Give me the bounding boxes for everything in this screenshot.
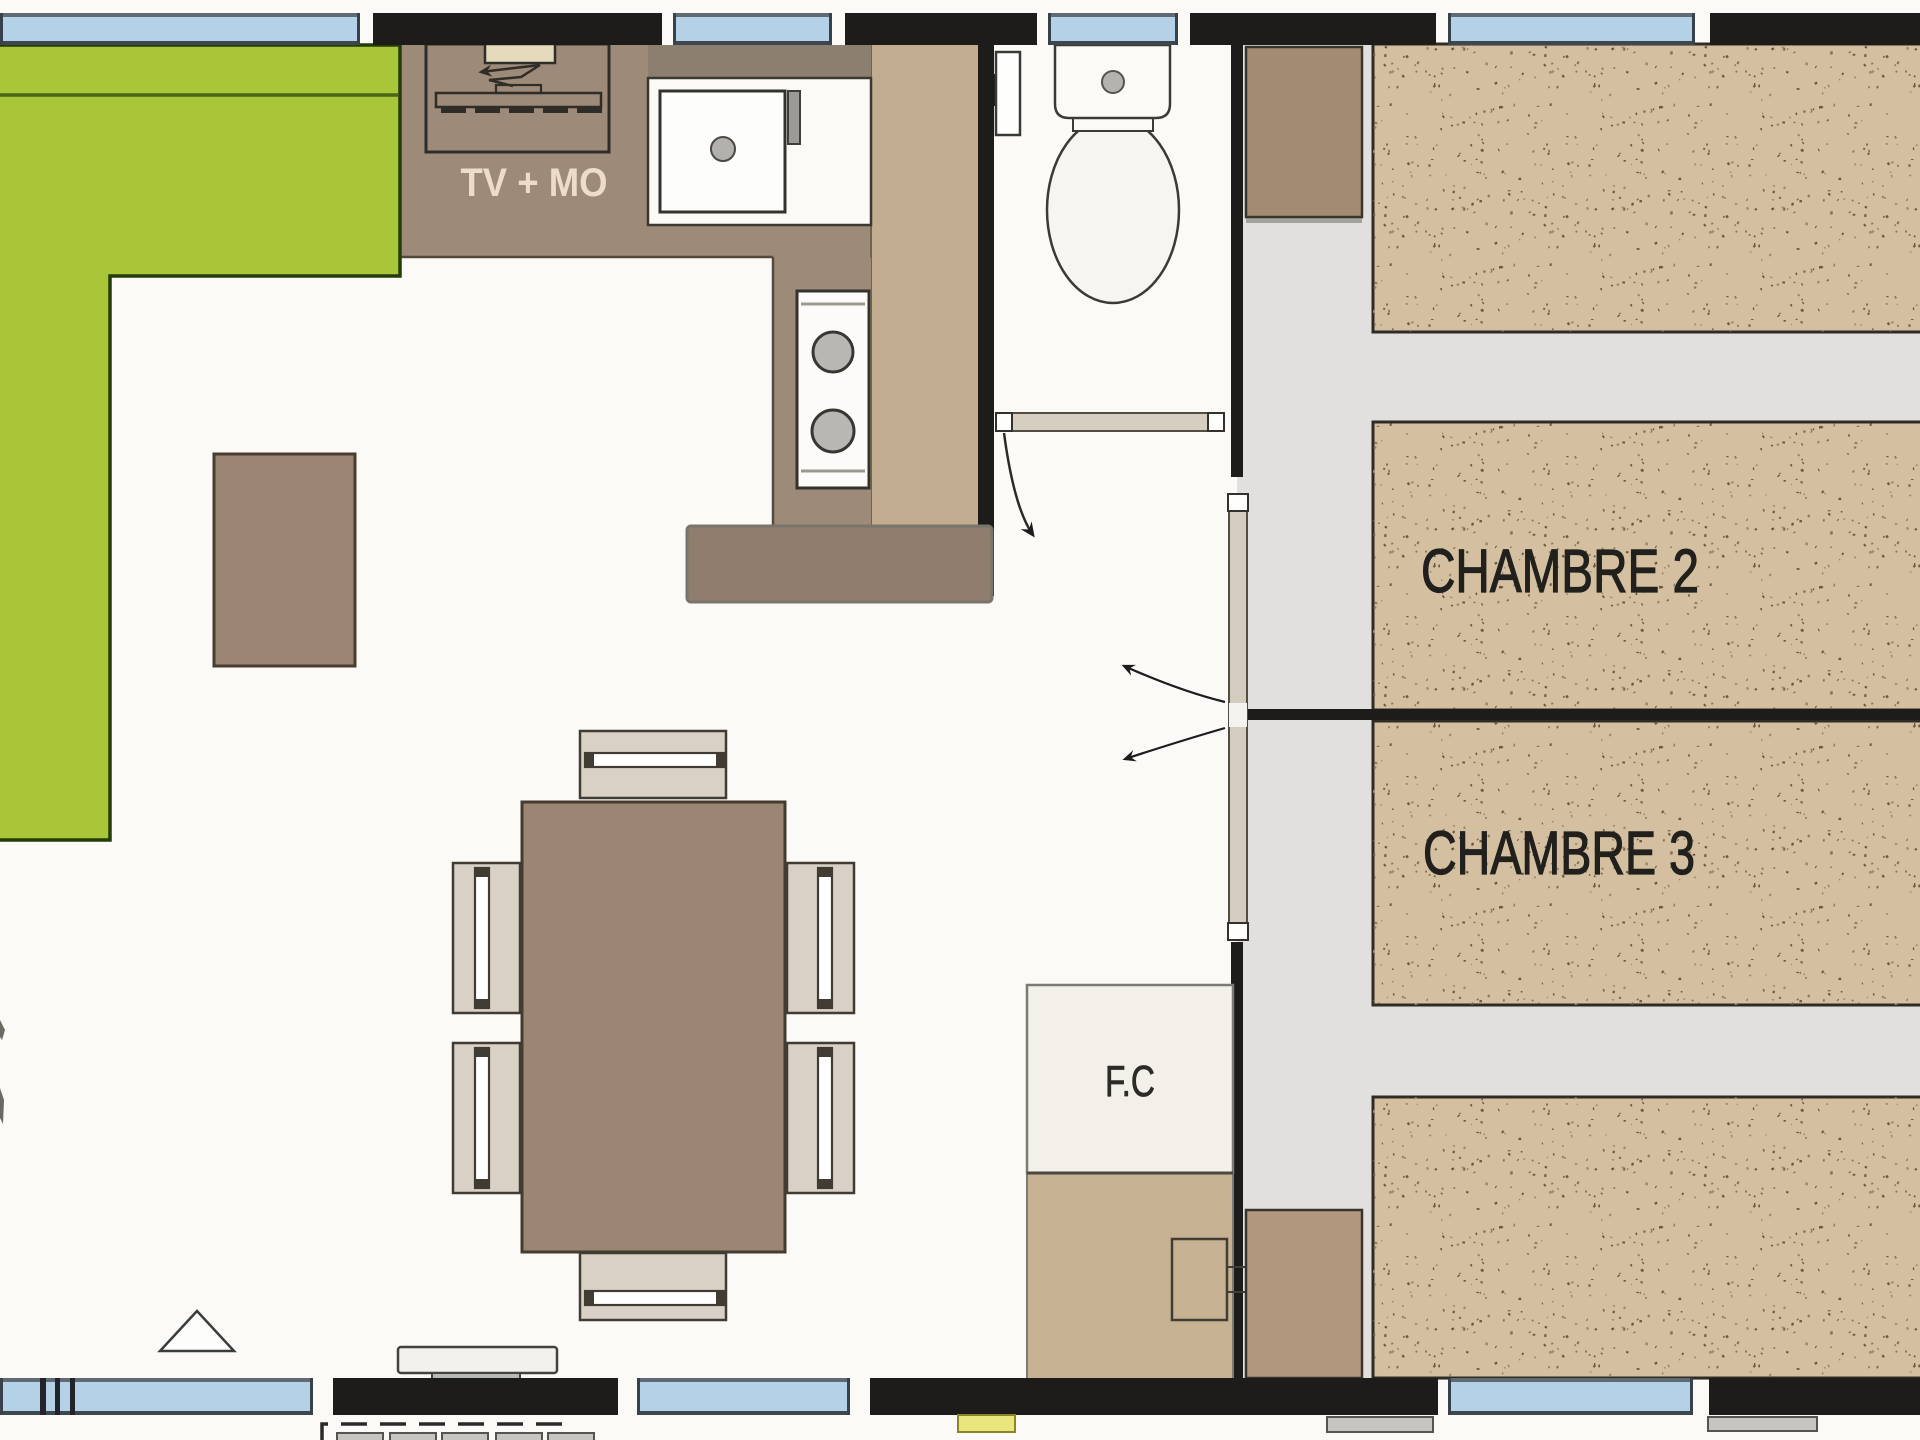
svg-text:CHAMBRE 3: CHAMBRE 3 xyxy=(1423,819,1695,887)
svg-text:TV + MO: TV + MO xyxy=(461,161,608,205)
svg-text:F.C: F.C xyxy=(1105,1057,1155,1106)
svg-text:CHAMBRE 2: CHAMBRE 2 xyxy=(1421,537,1699,605)
